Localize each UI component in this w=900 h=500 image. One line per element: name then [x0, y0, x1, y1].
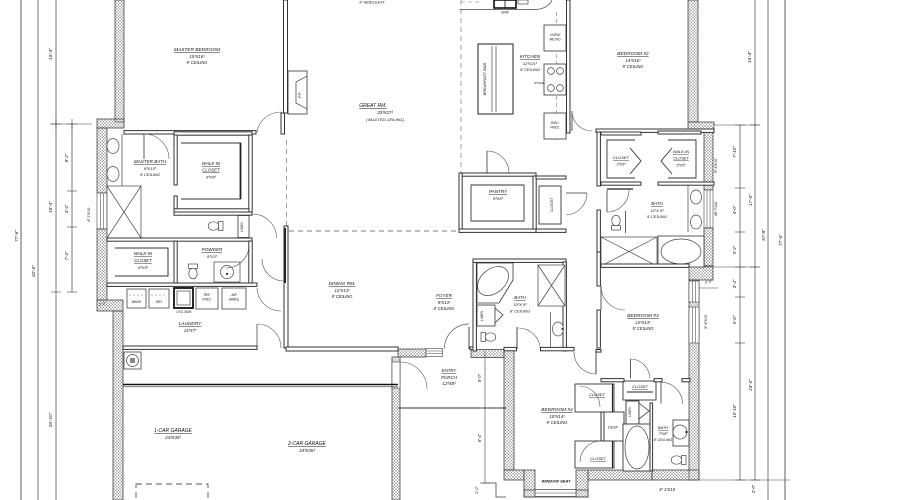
svg-text:8³X8³: 8³X8³ [206, 175, 216, 180]
svg-text:9' CEILING: 9' CEILING [632, 326, 654, 331]
svg-text:REF.: REF. [204, 293, 211, 297]
svg-text:AIR: AIR [230, 293, 237, 297]
svg-text:STOVE: STOVE [534, 81, 545, 85]
svg-text:WALK-IN: WALK-IN [673, 149, 689, 154]
svg-text:CLOSET: CLOSET [632, 384, 649, 389]
svg-text:BEDROOM #4: BEDROOM #4 [541, 407, 573, 413]
svg-text:8³X6³: 8³X6³ [493, 196, 503, 201]
svg-text:62'-6": 62'-6" [31, 265, 36, 277]
svg-text:MASTER BATH: MASTER BATH [134, 159, 167, 164]
svg-text:(VAULTED CEILING): (VAULTED CEILING) [366, 117, 404, 122]
svg-text:WALK-IN: WALK-IN [202, 161, 221, 166]
svg-text:18'-4": 18'-4" [48, 201, 53, 213]
svg-text:17'-0": 17'-0" [748, 194, 753, 206]
svg-text:CLOSET: CLOSET [550, 197, 554, 212]
svg-text:DINING RM.: DINING RM. [329, 281, 356, 287]
svg-text:4³ 1³X10: 4³ 1³X10 [87, 207, 91, 222]
svg-text:8³X3³: 8³X3³ [207, 254, 217, 259]
svg-text:BEDROOM #3: BEDROOM #3 [627, 313, 659, 319]
svg-text:9' CEILING: 9' CEILING [186, 60, 208, 65]
svg-text:BEDROOM #2: BEDROOM #2 [617, 51, 649, 57]
svg-text:5'-0": 5'-0" [732, 315, 737, 324]
svg-text:9' CEILING: 9' CEILING [622, 64, 644, 69]
svg-text:BATH: BATH [514, 295, 526, 300]
svg-text:OVEN/: OVEN/ [550, 33, 561, 37]
svg-text:15'-10": 15'-10" [732, 404, 737, 418]
svg-text:7'-10": 7'-10" [732, 146, 737, 158]
svg-text:HANDL: HANDL [229, 298, 240, 302]
svg-text:8' CEILING: 8' CEILING [510, 309, 530, 314]
svg-text:DRY: DRY [156, 300, 163, 304]
svg-text:8³X13³: 8³X13³ [144, 166, 157, 171]
svg-text:DESK: DESK [608, 426, 618, 430]
svg-text:14³X16³: 14³X16³ [626, 58, 642, 63]
svg-text:12³X8³: 12³X8³ [442, 381, 456, 386]
svg-text:ENTRY: ENTRY [442, 368, 458, 373]
svg-text:CLOSET: CLOSET [673, 156, 689, 161]
svg-text:9' CEILING: 9' CEILING [546, 420, 568, 425]
svg-text:FREZ.: FREZ. [550, 126, 560, 130]
svg-text:FREZ.: FREZ. [202, 298, 211, 302]
svg-text:8' SIDELIGHT: 8' SIDELIGHT [359, 0, 385, 5]
svg-text:10³X13³: 10³X13³ [636, 320, 652, 325]
svg-text:3³X5³: 3³X5³ [616, 163, 626, 167]
svg-text:13³X7³: 13³X7³ [184, 328, 197, 333]
svg-text:6'-4": 6'-4" [477, 433, 482, 442]
svg-text:4'-0": 4'-0" [732, 205, 737, 214]
svg-text:LINEN: LINEN [628, 407, 632, 417]
svg-text:1-CAR GARAGE: 1-CAR GARAGE [154, 428, 192, 434]
svg-text:LINEN: LINEN [240, 222, 244, 232]
svg-text:5³ 4³X10: 5³ 4³X10 [714, 158, 718, 173]
svg-text:77'-6": 77'-6" [778, 234, 783, 246]
svg-text:8'-2": 8'-2" [64, 153, 69, 162]
svg-text:2'-0": 2'-0" [751, 484, 756, 494]
svg-text:9' CEILING: 9' CEILING [647, 214, 667, 219]
svg-text:MASTER BEDROOM: MASTER BEDROOM [174, 47, 220, 53]
svg-text:BATH: BATH [658, 425, 668, 430]
svg-text:KITCHEN: KITCHEN [520, 54, 541, 59]
svg-text:20³X27³: 20³X27³ [376, 110, 393, 115]
svg-text:57'-8": 57'-8" [761, 229, 766, 241]
svg-text:PANTRY: PANTRY [489, 189, 508, 194]
svg-text:15³X16³: 15³X16³ [190, 54, 206, 59]
svg-text:2-CAR GARAGE: 2-CAR GARAGE [287, 441, 326, 447]
svg-text:48" F.AD: 48" F.AD [714, 201, 718, 216]
svg-text:LINEN: LINEN [480, 311, 484, 321]
svg-text:CLOSET: CLOSET [134, 258, 152, 263]
svg-text:4'-4": 4'-4" [64, 204, 69, 213]
svg-text:24³X35³: 24³X35³ [164, 435, 181, 440]
svg-text:2'-0": 2'-0" [475, 486, 479, 495]
svg-text:77'-6": 77'-6" [14, 230, 19, 242]
svg-text:LAUNDRY: LAUNDRY [179, 321, 203, 327]
svg-text:5'-2": 5'-2" [732, 245, 737, 254]
svg-text:WINDOW SEAT: WINDOW SEAT [541, 479, 571, 484]
svg-text:3'-4": 3'-4" [732, 279, 737, 288]
svg-text:10³X14³: 10³X14³ [550, 414, 566, 419]
svg-text:6'-0": 6'-0" [477, 373, 482, 382]
svg-text:8' CEILING: 8' CEILING [654, 438, 673, 442]
svg-text:SINK: SINK [501, 11, 510, 15]
svg-text:GREAT RM.: GREAT RM. [359, 103, 386, 109]
svg-text:WASH: WASH [132, 300, 142, 304]
svg-text:3³ 4³X10: 3³ 4³X10 [704, 314, 708, 329]
svg-text:10³X 9³: 10³X 9³ [513, 302, 527, 307]
svg-text:3³ 1³X10: 3³ 1³X10 [659, 487, 676, 492]
svg-text:12³X13³: 12³X13³ [335, 288, 351, 293]
svg-text:12³X 9³: 12³X 9³ [650, 208, 664, 213]
svg-text:UTIL.SINK: UTIL.SINK [176, 310, 192, 314]
svg-text:PORCH: PORCH [441, 375, 458, 380]
svg-text:CLOSET: CLOSET [613, 155, 630, 160]
svg-text:9' CEILING: 9' CEILING [140, 172, 160, 177]
svg-text:16'-4": 16'-4" [747, 51, 752, 63]
svg-text:8³X5³: 8³X5³ [138, 265, 148, 270]
svg-text:BREAKFAST BAR: BREAKFAST BAR [482, 62, 487, 95]
svg-text:9³X13³: 9³X13³ [438, 300, 451, 305]
svg-text:12³X21³: 12³X21³ [523, 61, 538, 66]
svg-text:BATH: BATH [651, 201, 663, 206]
svg-text:7³X8³: 7³X8³ [658, 432, 668, 436]
svg-text:8' CEILING: 8' CEILING [433, 306, 455, 311]
svg-text:9' CEILING: 9' CEILING [331, 294, 353, 299]
svg-text:CLOSET: CLOSET [590, 456, 607, 461]
svg-text:FOYER: FOYER [436, 293, 453, 298]
svg-text:F.P.: F.P. [297, 92, 302, 98]
svg-text:9' CEILING: 9' CEILING [520, 67, 540, 72]
svg-text:CLOSET: CLOSET [202, 168, 220, 173]
svg-text:24³X35³: 24³X35³ [298, 448, 315, 453]
svg-text:24'-0": 24'-0" [748, 379, 753, 392]
svg-text:7'-4": 7'-4" [64, 251, 69, 260]
svg-text:WALK-IN: WALK-IN [134, 251, 153, 256]
svg-text:26'-10": 26'-10" [48, 413, 53, 429]
svg-text:5³X5³: 5³X5³ [676, 164, 686, 168]
svg-text:MICRO: MICRO [550, 38, 561, 42]
svg-text:16'-4": 16'-4" [48, 48, 53, 60]
svg-text:POWDER: POWDER [202, 247, 223, 252]
svg-text:PAN./: PAN./ [551, 121, 560, 125]
